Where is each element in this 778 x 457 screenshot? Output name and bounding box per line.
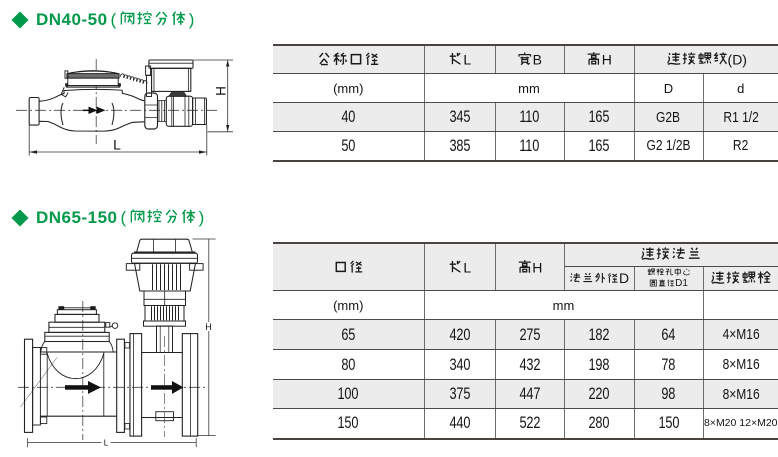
svg-text:H: H [214, 86, 229, 96]
svg-text:L: L [104, 438, 109, 447]
svg-text:L: L [113, 137, 121, 153]
svg-text:H: H [205, 322, 212, 332]
